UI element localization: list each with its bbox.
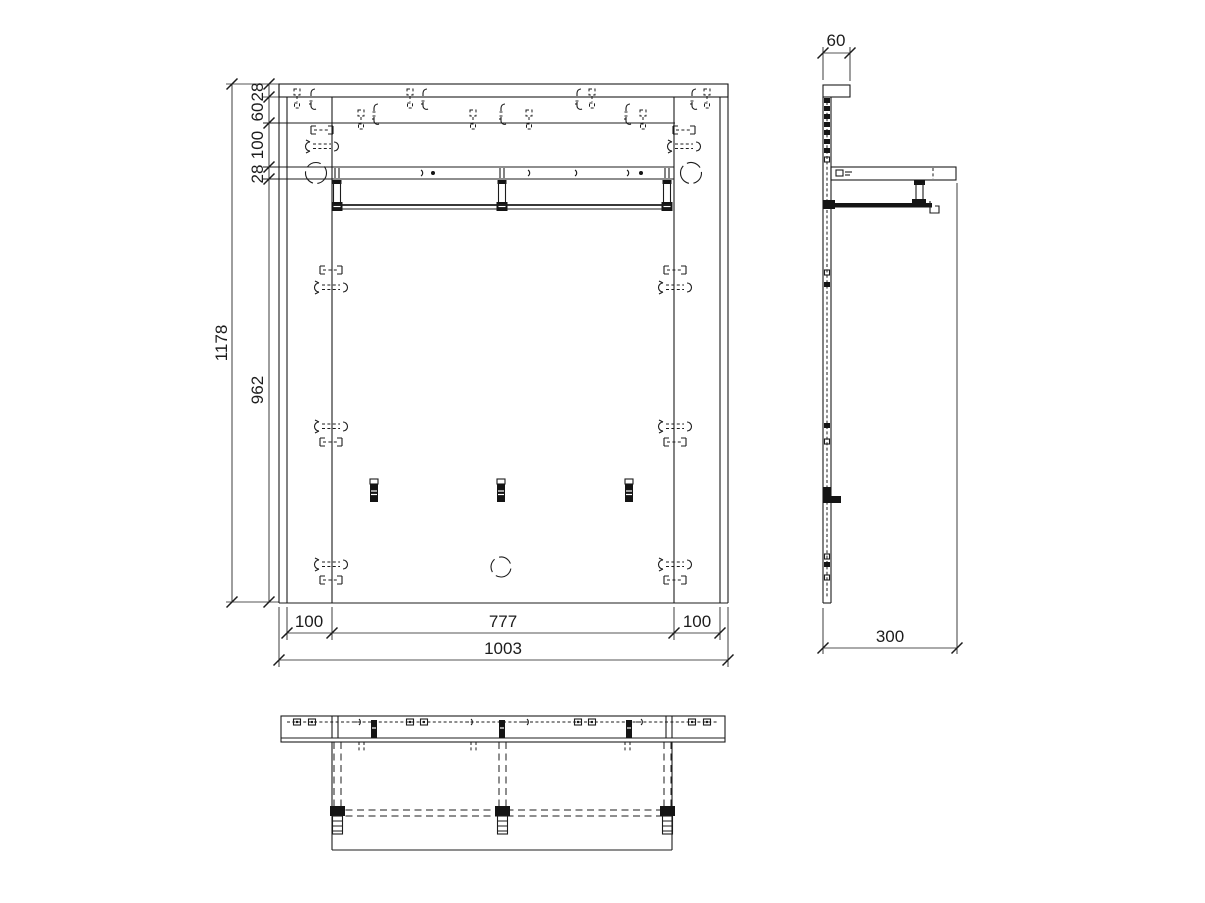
dim-front-total-height: 1178 — [212, 325, 231, 362]
dim-front-chain-60: 60 — [248, 103, 267, 122]
side-view: 60 300 — [818, 31, 963, 654]
front-partition-fittings — [306, 126, 701, 584]
drawing-page: 1178 28 60 100 28 962 100 777 100 1003 — [0, 0, 1205, 903]
side-dimensions: 60 300 — [818, 31, 963, 654]
dim-front-chain-28b: 28 — [248, 165, 267, 184]
front-top-rail-clips — [294, 89, 710, 109]
front-mid-band-clips — [358, 104, 646, 129]
dim-front-lower-height: 962 — [248, 376, 267, 404]
plan-strip-fittings — [294, 719, 711, 751]
front-cable-holes — [306, 158, 706, 581]
dim-front-chain-28a: 28 — [248, 83, 267, 102]
side-shelf-and-rail — [823, 167, 956, 213]
dim-front-chain-100: 100 — [248, 131, 267, 159]
front-wall-brackets — [370, 479, 633, 502]
front-rail-assembly — [332, 168, 673, 211]
dim-side-depth: 300 — [876, 627, 904, 646]
technical-drawing-canvas: 1178 28 60 100 28 962 100 777 100 1003 — [0, 0, 1205, 903]
plan-hidden-brackets-and-rail — [330, 742, 675, 834]
front-panel-outline — [263, 84, 728, 603]
front-view: 1178 28 60 100 28 962 100 777 100 1003 — [212, 79, 734, 668]
bottom-view — [281, 716, 725, 850]
side-panel-outline — [823, 85, 850, 603]
dim-front-bottom-left: 100 — [295, 612, 323, 631]
dim-front-total-width: 1003 — [484, 639, 522, 658]
dim-side-top-width: 60 — [827, 31, 846, 50]
dim-front-bottom-center: 777 — [489, 612, 517, 631]
dim-front-bottom-right: 100 — [683, 612, 711, 631]
